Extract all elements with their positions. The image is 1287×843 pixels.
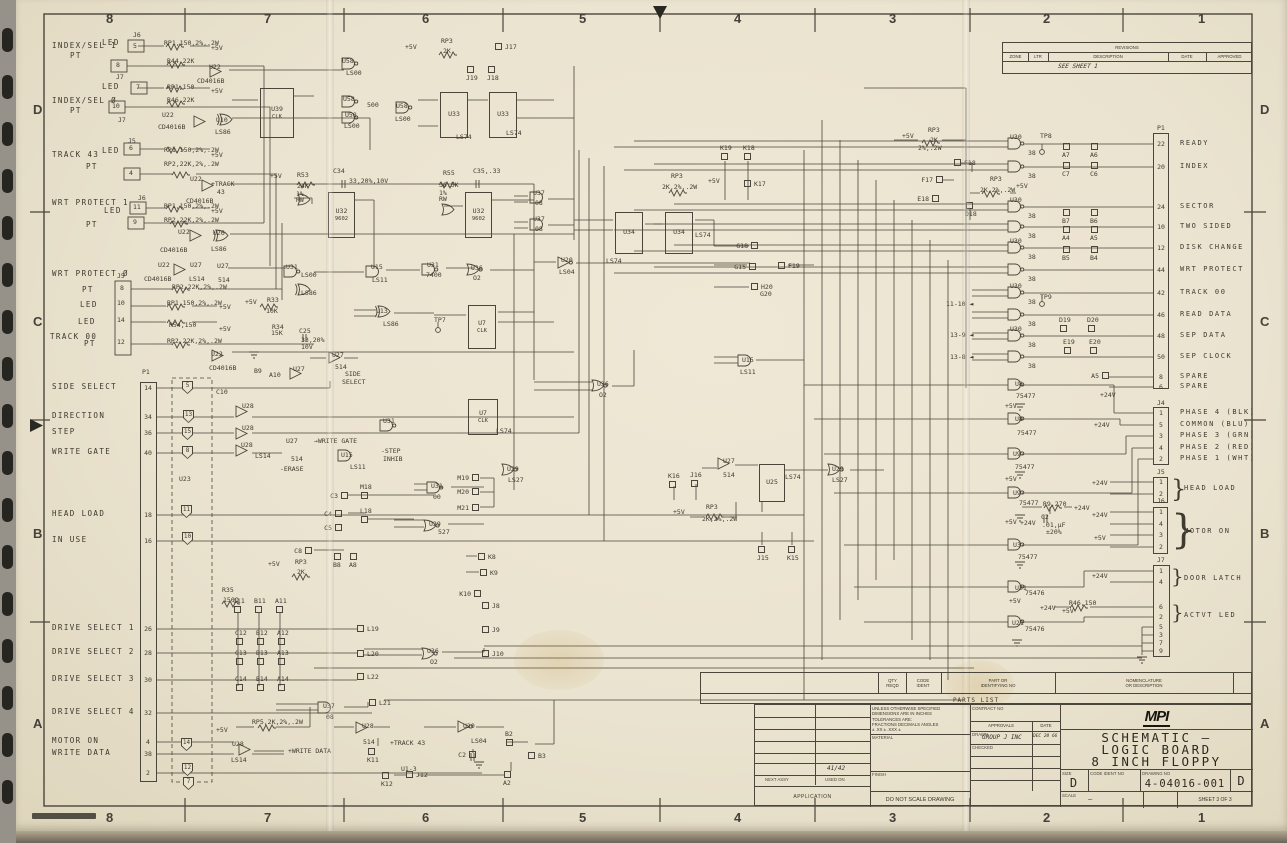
p1-right-pin-number: 20: [1154, 163, 1168, 171]
solder-pad: A11: [276, 606, 283, 613]
solder-pad: B12: [257, 638, 264, 645]
zone-number-bottom: 5: [579, 810, 586, 825]
p1-left-pin-number: 26: [141, 625, 155, 633]
pad-label: B5: [1062, 255, 1070, 262]
pad-label: B12: [256, 630, 268, 637]
solder-pad: M18: [361, 492, 368, 499]
component-label: ±20%: [1046, 529, 1062, 536]
connector-pin-number: 2: [1154, 543, 1168, 551]
solder-pad: J18: [488, 66, 495, 73]
component-label: TP9: [1040, 294, 1052, 301]
mpi-logo: MPI: [1143, 708, 1171, 727]
ic-box: U33: [440, 92, 468, 138]
ic-box: U34: [665, 212, 693, 254]
binder-hole: [2, 592, 13, 616]
component-label: LS86: [383, 321, 399, 328]
pad-label: C11: [233, 598, 245, 605]
zone-number-bottom: 3: [889, 810, 896, 825]
revisions-col-zone: ZONE: [1003, 52, 1029, 61]
component-label: J7: [116, 74, 124, 81]
pad-label: H20: [761, 284, 773, 291]
component-label: U22: [209, 64, 221, 71]
zone-letter-right: D: [1260, 102, 1269, 117]
solder-pad: C3: [341, 492, 348, 499]
input-signal-label: DRIVE SELECT 3: [52, 675, 135, 683]
p1-left-pin-number: 40: [141, 449, 155, 457]
pad-label: C14: [235, 676, 247, 683]
component-label: 8: [116, 62, 120, 69]
connector-name: J7: [1157, 557, 1165, 564]
fold-crease: [326, 0, 334, 832]
pad-label: C2: [458, 752, 466, 759]
component-label: A10: [269, 372, 281, 379]
component-label: TP7: [434, 317, 446, 324]
component-label: LS00: [346, 70, 362, 77]
binder-hole: [2, 75, 13, 99]
component-label: +5V: [219, 304, 231, 311]
component-label: U22: [211, 351, 223, 358]
p1-left-pin-number: 14: [141, 384, 155, 392]
component-label: LS11: [372, 277, 388, 284]
code-ident-label: CODE IDENT NO: [1090, 771, 1124, 776]
component-label: 38: [1028, 150, 1036, 157]
solder-pad: J12: [406, 771, 413, 778]
component-label: CD4016B: [209, 365, 236, 372]
photo-edge-shadow: [0, 831, 1287, 843]
solder-pad: B8: [334, 553, 341, 560]
component-label: U31: [431, 483, 443, 490]
solder-pad: L22: [357, 673, 364, 680]
component-label: INDEX/SEL Ø: [52, 97, 117, 105]
pad-label: A14: [277, 676, 289, 683]
do-not-scale-note: DO NOT SCALE DRAWING: [870, 792, 970, 807]
solder-pad: A13: [278, 658, 285, 665]
p1-right-pin-number: 44: [1154, 266, 1168, 274]
p1-left-pin-number: 16: [141, 537, 155, 545]
component-label: R53: [297, 172, 309, 179]
solder-pad: J9: [482, 626, 489, 633]
component-label: 75477: [1019, 500, 1039, 507]
application-label: APPLICATION: [755, 787, 870, 807]
zone-number-top: 3: [889, 11, 896, 26]
component-label: 12: [117, 339, 125, 346]
pad-label: M20: [457, 489, 469, 496]
component-label: RP2,22K,2%,.2W: [164, 217, 219, 224]
component-label: LED: [80, 301, 98, 309]
component-label: U20: [561, 257, 573, 264]
pad-label: C13: [235, 650, 247, 657]
component-label: U30: [1010, 197, 1022, 204]
component-label: +5V: [673, 509, 685, 516]
solder-pad: C14: [236, 684, 243, 691]
component-label: U30: [1010, 326, 1022, 333]
binder-hole: [2, 216, 13, 240]
pad-label: K18: [743, 145, 755, 152]
pad-label: K12: [381, 781, 393, 788]
component-label: +TRACK: [211, 181, 234, 188]
revision-letter: D: [1230, 770, 1253, 792]
zone-letter-left: B: [33, 526, 42, 541]
revisions-block: REVISIONS ZONE LTR DESCRIPTION DATE APPR…: [1002, 42, 1252, 74]
component-label: 7400: [426, 272, 442, 279]
component-label: +5V: [1005, 519, 1017, 526]
component-label: LS14: [231, 757, 247, 764]
revisions-col-description: DESCRIPTION: [1048, 52, 1169, 61]
solder-pad: J8: [482, 602, 489, 609]
component-label: CD4016B: [160, 247, 187, 254]
zone-number-bottom: 6: [422, 810, 429, 825]
component-label: 2%,.2W: [918, 145, 941, 152]
group-brace: }: [1171, 602, 1184, 622]
component-label: LS00: [301, 272, 317, 279]
component-label: U30: [1010, 238, 1022, 245]
component-label: 38: [1028, 233, 1036, 240]
scale-label: SCALE: [1062, 793, 1076, 798]
component-label: 38: [1028, 299, 1036, 306]
p1-right-pin-number: 22: [1154, 140, 1168, 148]
pad-label: K19: [720, 145, 732, 152]
connector-group-label: HEAD LOAD: [1184, 485, 1236, 492]
solder-pad: A5: [1102, 372, 1109, 379]
spiral-binding: [0, 0, 16, 843]
approvals-date-label: DATE: [1032, 721, 1060, 731]
component-label: 38: [1028, 342, 1036, 349]
input-signal-label: STEP: [52, 428, 76, 436]
drawn-date: DEC 20 66: [1033, 734, 1057, 739]
output-signal-label: SPARE: [1180, 383, 1209, 390]
solder-pad: J19: [467, 66, 474, 73]
binder-hole: [2, 639, 13, 663]
component-label: +24V: [1092, 512, 1108, 519]
component-label: U36: [597, 381, 609, 388]
p1-left-pin-number: 4: [141, 738, 155, 746]
parts-col-part: PART OR IDENTIFYING NO: [941, 673, 1056, 693]
component-label: 14: [117, 317, 125, 324]
solder-pad: F17: [936, 176, 943, 183]
component-label: LED: [102, 83, 120, 91]
component-label: 11: [133, 204, 141, 211]
output-signal-label: TRACK 00: [1180, 289, 1227, 296]
component-label: U27: [286, 438, 298, 445]
component-label: +24V: [1092, 573, 1108, 580]
connector-pin-label: PHASE 1 (WHT): [1180, 455, 1256, 462]
material-label: MATERIAL: [872, 735, 893, 740]
component-label: C35,.33: [473, 168, 500, 175]
component-label: +5V: [211, 152, 223, 159]
component-label: +5V: [1094, 535, 1106, 542]
component-label: RP2,22K,2%,.2W: [164, 161, 219, 168]
component-label: LS11: [350, 464, 366, 471]
connector-pin-number: 3: [1154, 631, 1168, 639]
zone-number-top: 7: [264, 11, 271, 26]
zone-number-bottom: 1: [1198, 810, 1205, 825]
component-label: 43: [217, 189, 225, 196]
ic-box: U7CLK: [468, 305, 496, 349]
zone-number-top: 2: [1043, 11, 1050, 26]
solder-pad: A7: [1063, 143, 1070, 150]
component-label: RP3: [706, 504, 718, 511]
solder-pad: B2: [506, 739, 513, 746]
component-label: +24V: [1074, 505, 1090, 512]
solder-pad: L20: [357, 650, 364, 657]
ic-box: U25: [759, 464, 785, 502]
connector-pin-label: PHASE 3 (GRN): [1180, 432, 1256, 439]
solder-pad: L18: [361, 516, 368, 523]
p1-right-pin-number: 12: [1154, 244, 1168, 252]
component-label: +24V: [1092, 480, 1108, 487]
solder-pad: E20: [1090, 347, 1097, 354]
component-label: U58: [396, 103, 408, 110]
component-label: R35: [222, 587, 234, 594]
component-label: -ERASE: [280, 466, 303, 473]
used-on-label: USED ON: [825, 777, 845, 782]
pad-label: D20: [1087, 317, 1099, 324]
component-label: J5: [117, 273, 125, 280]
component-label: +24V: [1100, 392, 1116, 399]
pad-label: J9: [492, 627, 500, 634]
component-label: LS74: [785, 474, 801, 481]
pad-label: J17: [505, 44, 517, 51]
solder-pad: B14: [257, 684, 264, 691]
component-label: RW: [296, 197, 304, 204]
component-label: R44,22K: [167, 58, 194, 65]
connector-group-label: MOTOR ON: [1184, 528, 1231, 535]
pad-label: K16: [668, 473, 680, 480]
component-label: PT: [86, 163, 98, 171]
ic-box: U33: [489, 92, 517, 138]
component-label: SIDE: [345, 371, 361, 378]
pad-label: E18: [917, 196, 929, 203]
termination-shield: 5: [182, 381, 193, 394]
component-label: LED: [102, 39, 120, 47]
component-label: 33,20%,10V: [349, 178, 388, 185]
ic-box: U329602: [465, 192, 492, 238]
pad-label: K10: [459, 591, 471, 598]
component-label: U15: [371, 264, 383, 271]
component-label: +5V: [216, 727, 228, 734]
pad-label: C12: [235, 630, 247, 637]
zone-number-bottom: 2: [1043, 810, 1050, 825]
zone-number-top: 4: [734, 11, 741, 26]
zone-number-bottom: 8: [106, 810, 113, 825]
p1-right-connector: [1153, 133, 1169, 389]
solder-pad: M20: [472, 488, 479, 495]
pad-label: A2: [503, 780, 511, 787]
component-label: +5V: [245, 299, 257, 306]
pad-label: D19: [1059, 317, 1071, 324]
pad-label: L18: [360, 508, 372, 515]
pad-label: B8: [333, 562, 341, 569]
solder-pad: A4: [1063, 226, 1070, 233]
connector-pin-number: 5: [1154, 421, 1168, 429]
p1-right-pin-number: 10: [1154, 223, 1168, 231]
component-label: J6: [138, 195, 146, 202]
p1-left-pin-number: 32: [141, 709, 155, 717]
component-label: LS14: [189, 276, 205, 283]
input-signal-label: WRITE DATA: [52, 749, 111, 757]
component-label: U31: [427, 262, 439, 269]
input-signal-label: DRIVE SELECT 1: [52, 624, 135, 632]
component-label: +5V: [1005, 476, 1017, 483]
component-label: LS74: [606, 258, 622, 265]
connector-pin-number: 1: [1154, 567, 1168, 575]
solder-pad: J17: [495, 43, 502, 50]
component-label: LS14: [255, 453, 271, 460]
revision-entry: SEE SHEET 1: [1058, 63, 1099, 70]
p1-left-pin-number: 30: [141, 676, 155, 684]
title-block: 41/42 NEXT ASSY USED ON APPLICATION UNLE…: [754, 704, 1252, 806]
component-label: 38: [1028, 254, 1036, 261]
component-label: PT: [70, 52, 82, 60]
connector-pin-number: 2: [1154, 613, 1168, 621]
termination-shield: 8: [182, 446, 193, 459]
pad-label: J8: [492, 603, 500, 610]
binder-hole: [2, 310, 13, 334]
component-label: LS00: [344, 123, 360, 130]
solder-pad: K9: [480, 569, 487, 576]
p1-left-pin-number: 28: [141, 649, 155, 657]
component-label: LS04: [559, 269, 575, 276]
zone-letter-left: D: [33, 102, 42, 117]
termination-shield: 15: [182, 427, 193, 440]
connector-pin-number: 4: [1154, 578, 1168, 586]
pad-label: B7: [1062, 218, 1070, 225]
input-signal-label: HEAD LOAD: [52, 510, 105, 518]
p1-right-pin-number: 48: [1154, 332, 1168, 340]
solder-pad: M19: [472, 474, 479, 481]
component-label: LS27: [832, 477, 848, 484]
connector-pin-label: COMMON (BLU): [1180, 421, 1250, 428]
component-label: RP2,22K,2%,.2W: [167, 338, 222, 345]
component-label: U28: [242, 403, 254, 410]
solder-pad: B11: [255, 606, 262, 613]
component-label: U20: [463, 723, 475, 730]
component-label: U31: [383, 418, 395, 425]
connector-pin-number: 9: [1154, 647, 1168, 655]
component-label: LS27: [508, 477, 524, 484]
used-on-value: 41/42: [827, 765, 845, 772]
pad-label: B4: [1090, 255, 1098, 262]
component-label: +5V: [211, 208, 223, 215]
component-label: G20: [760, 291, 772, 298]
pad-label: L19: [367, 626, 379, 633]
pad-label: J15: [757, 555, 769, 562]
component-label: +5V: [1062, 608, 1074, 615]
solder-pad: B7: [1063, 209, 1070, 216]
component-label: 514: [723, 472, 735, 479]
component-label: RP5,2K,2%,.2W: [252, 719, 303, 726]
drawing-sheet: RP1,150,2%,.2W+5VR44,22KU22CD4016BRP1,15…: [14, 0, 1287, 832]
component-label: +24V: [1040, 605, 1056, 612]
solder-pad: L19: [357, 625, 364, 632]
component-label: U30: [1010, 134, 1022, 141]
output-signal-label: TWO SIDED: [1180, 223, 1232, 230]
solder-pad: E19: [1064, 347, 1071, 354]
component-label: +5V: [211, 88, 223, 95]
component-label: 75476: [1025, 626, 1045, 633]
solder-pad: G15: [749, 263, 756, 270]
pad-label: A4: [1062, 235, 1070, 242]
component-label: +5V: [1005, 403, 1017, 410]
pad-label: A13: [277, 650, 289, 657]
pad-label: L20: [367, 651, 379, 658]
component-label: 10: [117, 300, 125, 307]
solder-pad: C8: [305, 547, 312, 554]
connector-pin-label: PHASE 2 (RED): [1180, 444, 1256, 451]
component-label: U26: [213, 230, 225, 237]
component-label: TRACK 43: [52, 151, 99, 159]
component-label: RP3: [928, 127, 940, 134]
termination-shield: 11: [181, 505, 192, 518]
connector-group-label: DOOR LATCH: [1184, 575, 1242, 582]
component-label: LS86: [301, 290, 317, 297]
zone-letter-left: C: [33, 314, 42, 329]
component-label: U28: [362, 723, 374, 730]
connector-group-label: ACTVT LED: [1184, 612, 1236, 619]
pad-label: L22: [367, 674, 379, 681]
output-signal-label: SECTOR: [1180, 203, 1215, 210]
next-assy-label: NEXT ASSY: [765, 777, 789, 782]
output-signal-label: DISK CHANGE: [1180, 244, 1244, 251]
component-label: LS11: [740, 369, 756, 376]
component-label: 00: [433, 494, 441, 501]
component-label: RP3: [295, 559, 307, 566]
p1-right-pin-number: 42: [1154, 289, 1168, 297]
p1-right-name: P1: [1157, 125, 1165, 132]
solder-pad: A5: [1091, 226, 1098, 233]
component-label: C2: [1041, 514, 1049, 521]
parts-col-qty: QTY REQD: [878, 673, 907, 693]
output-signal-label: READ DATA: [1180, 311, 1232, 318]
component-label: 6: [129, 145, 133, 152]
solder-pad: H20: [751, 283, 758, 290]
solder-pad: K17: [744, 180, 751, 187]
connector-pin-number: 1: [1154, 508, 1168, 516]
input-signal-label: DRIVE SELECT 4: [52, 708, 135, 716]
binder-hole: [2, 263, 13, 287]
parts-col-code: CODE IDENT: [905, 673, 942, 693]
output-signal-label: SEP DATA: [1180, 332, 1227, 339]
pad-label: A12: [277, 630, 289, 637]
solder-pad: K11: [368, 748, 375, 755]
component-label: O2: [599, 392, 607, 399]
component-label: LED: [104, 207, 122, 215]
termination-shield: 12: [182, 763, 193, 776]
component-label: U36: [471, 265, 483, 272]
component-label: +5V: [1016, 183, 1028, 190]
ic-box: U7CLK: [468, 399, 498, 435]
component-label: 10V: [301, 344, 313, 351]
component-label: U22: [162, 112, 174, 119]
component-label: O2: [473, 275, 481, 282]
component-label: 2K,2%,.2W: [702, 516, 737, 523]
component-label: U29: [832, 466, 844, 473]
connector-pin-number: 1: [1154, 478, 1168, 486]
pad-label: C6: [1090, 171, 1098, 178]
zone-number-top: 6: [422, 11, 429, 26]
connector-pin-number: 5: [1154, 623, 1168, 631]
component-label: +24V: [1020, 520, 1036, 527]
p1-left-pin-number: 38: [141, 750, 155, 758]
input-signal-label: DRIVE SELECT 2: [52, 648, 135, 656]
pad-label: A11: [275, 598, 287, 605]
component-label: C10: [216, 389, 228, 396]
component-label: +5V: [219, 326, 231, 333]
p1-left-connector: [140, 382, 157, 782]
pad-label: A5: [1091, 373, 1099, 380]
component-label: LS04: [471, 738, 487, 745]
component-label: TP8: [1040, 133, 1052, 140]
